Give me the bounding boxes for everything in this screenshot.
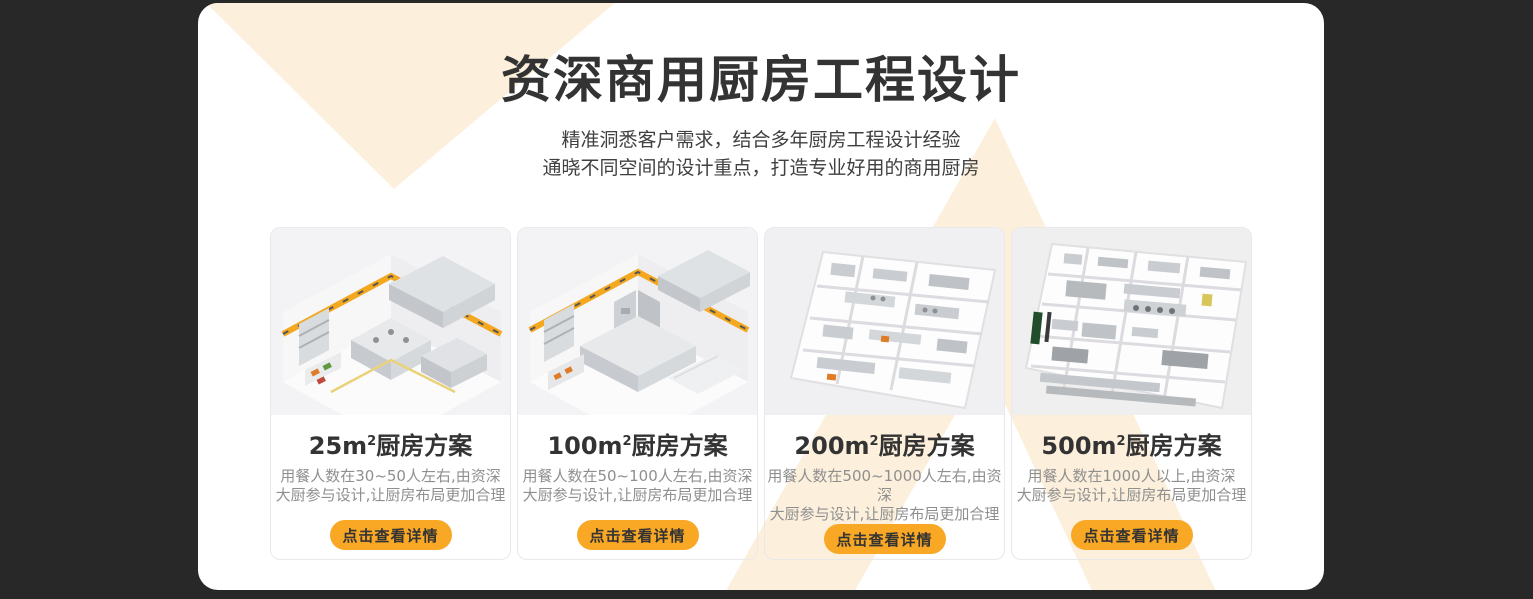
card-title-suffix: 厨房方案 [632, 432, 728, 460]
kitchen-render-100m2 [518, 228, 757, 415]
card-area-sup: 2 [1117, 434, 1126, 449]
card-area-value: 500m [1041, 432, 1116, 460]
page-subtitle: 精准洞悉客户需求，结合多年厨房工程设计经验 通晓不同空间的设计重点，打造专业好用… [198, 126, 1324, 182]
card-title-suffix: 厨房方案 [1126, 432, 1222, 460]
subtitle-line-2: 通晓不同空间的设计重点，打造专业好用的商用厨房 [198, 154, 1324, 182]
card-desc-line-1: 用餐人数在50~100人左右,由资深 [522, 467, 752, 486]
card-area-sup: 2 [623, 434, 632, 449]
plan-card-25m2: 25m2厨房方案 用餐人数在30~50人左右,由资深 大厨参与设计,让厨房布局更… [270, 227, 511, 560]
plan-card-200m2: 200m2厨房方案 用餐人数在500~1000人左右,由资深 大厨参与设计,让厨… [764, 227, 1005, 560]
plan-card-500m2: 500m2厨房方案 用餐人数在1000人以上,由资深 大厨参与设计,让厨房布局更… [1011, 227, 1252, 560]
card-desc-line-2: 大厨参与设计,让厨房布局更加合理 [276, 486, 506, 505]
card-area-value: 25m [309, 432, 367, 460]
view-details-button[interactable]: 点击查看详情 [330, 520, 452, 550]
card-area-value: 100m [547, 432, 622, 460]
page-title: 资深商用厨房工程设计 [198, 53, 1324, 107]
card-description: 用餐人数在50~100人左右,由资深 大厨参与设计,让厨房布局更加合理 [522, 467, 752, 505]
view-details-button[interactable]: 点击查看详情 [577, 520, 699, 550]
card-desc-line-1: 用餐人数在30~50人左右,由资深 [276, 467, 506, 486]
card-desc-line-1: 用餐人数在500~1000人左右,由资深 [765, 467, 1004, 505]
card-title: 500m2厨房方案 [1041, 427, 1221, 461]
card-area-sup: 2 [367, 434, 376, 449]
card-desc-line-2: 大厨参与设计,让厨房布局更加合理 [522, 486, 752, 505]
card-area-value: 200m [794, 432, 869, 460]
card-title-suffix: 厨房方案 [376, 432, 472, 460]
kitchen-render-500m2 [1012, 228, 1251, 415]
plan-card-100m2: 100m2厨房方案 用餐人数在50~100人左右,由资深 大厨参与设计,让厨房布… [517, 227, 758, 560]
view-details-button[interactable]: 点击查看详情 [824, 524, 946, 554]
card-desc-line-2: 大厨参与设计,让厨房布局更加合理 [1017, 486, 1247, 505]
subtitle-line-1: 精准洞悉客户需求，结合多年厨房工程设计经验 [198, 126, 1324, 154]
card-title: 25m2厨房方案 [309, 427, 472, 461]
card-description: 用餐人数在1000人以上,由资深 大厨参与设计,让厨房布局更加合理 [1017, 467, 1247, 505]
kitchen-render-200m2 [765, 228, 1004, 415]
card-description: 用餐人数在30~50人左右,由资深 大厨参与设计,让厨房布局更加合理 [276, 467, 506, 505]
card-desc-line-2: 大厨参与设计,让厨房布局更加合理 [765, 505, 1004, 524]
plan-cards-row: 25m2厨房方案 用餐人数在30~50人左右,由资深 大厨参与设计,让厨房布局更… [198, 227, 1324, 560]
card-desc-line-1: 用餐人数在1000人以上,由资深 [1017, 467, 1247, 486]
content-panel: 资深商用厨房工程设计 精准洞悉客户需求，结合多年厨房工程设计经验 通晓不同空间的… [198, 3, 1324, 590]
card-title: 200m2厨房方案 [794, 427, 974, 461]
kitchen-render-25m2 [271, 228, 510, 415]
card-title-suffix: 厨房方案 [879, 432, 975, 460]
view-details-button[interactable]: 点击查看详情 [1071, 520, 1193, 550]
card-description: 用餐人数在500~1000人左右,由资深 大厨参与设计,让厨房布局更加合理 [765, 467, 1004, 524]
card-area-sup: 2 [870, 434, 879, 449]
card-title: 100m2厨房方案 [547, 427, 727, 461]
